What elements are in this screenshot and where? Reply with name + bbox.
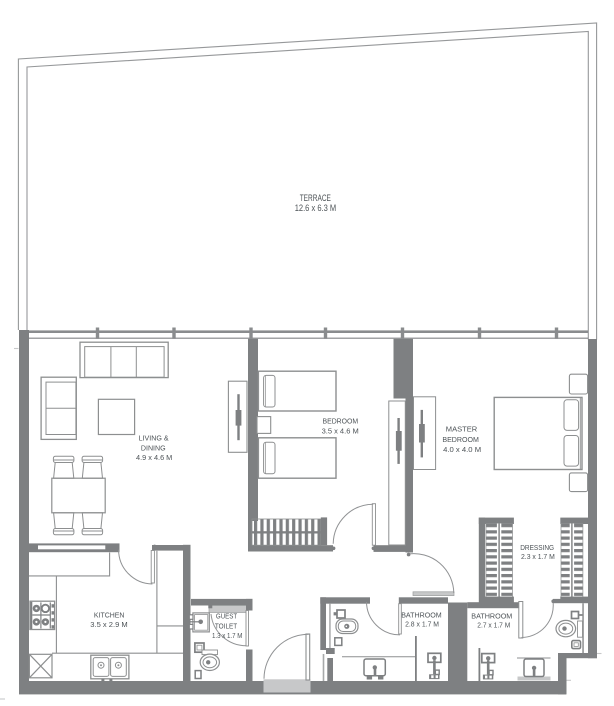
svg-text:BATHROOM: BATHROOM <box>471 612 512 621</box>
svg-text:GUEST: GUEST <box>216 612 238 621</box>
svg-text:DRESSING: DRESSING <box>520 543 554 552</box>
svg-text:2.7 x 1.7 M: 2.7 x 1.7 M <box>477 621 510 630</box>
svg-text:TERRACE: TERRACE <box>300 193 331 203</box>
svg-text:BEDROOM: BEDROOM <box>323 417 359 426</box>
svg-text:4.9 x 4.6 M: 4.9 x 4.6 M <box>136 453 172 462</box>
svg-text:1.3 x 1.7 M: 1.3 x 1.7 M <box>212 631 242 640</box>
svg-text:2.3 x 1.7 M: 2.3 x 1.7 M <box>521 552 555 561</box>
svg-text:12.6 x 6.3 M: 12.6 x 6.3 M <box>295 203 337 213</box>
svg-text:4.0 x 4.0 M: 4.0 x 4.0 M <box>443 445 481 454</box>
svg-text:3.5 x 4.6 M: 3.5 x 4.6 M <box>322 426 359 435</box>
svg-text:DINING: DINING <box>141 444 166 453</box>
svg-text:KITCHEN: KITCHEN <box>94 610 125 619</box>
svg-text:3.5 x 2.9 M: 3.5 x 2.9 M <box>90 620 127 629</box>
svg-text:TOILET: TOILET <box>215 622 238 631</box>
svg-text:BATHROOM: BATHROOM <box>401 611 442 620</box>
svg-text:LIVING &: LIVING & <box>139 434 169 443</box>
svg-text:2.8 x 1.7 M: 2.8 x 1.7 M <box>405 620 439 629</box>
svg-text:BEDROOM: BEDROOM <box>442 435 479 444</box>
svg-text:MASTER: MASTER <box>446 424 478 433</box>
